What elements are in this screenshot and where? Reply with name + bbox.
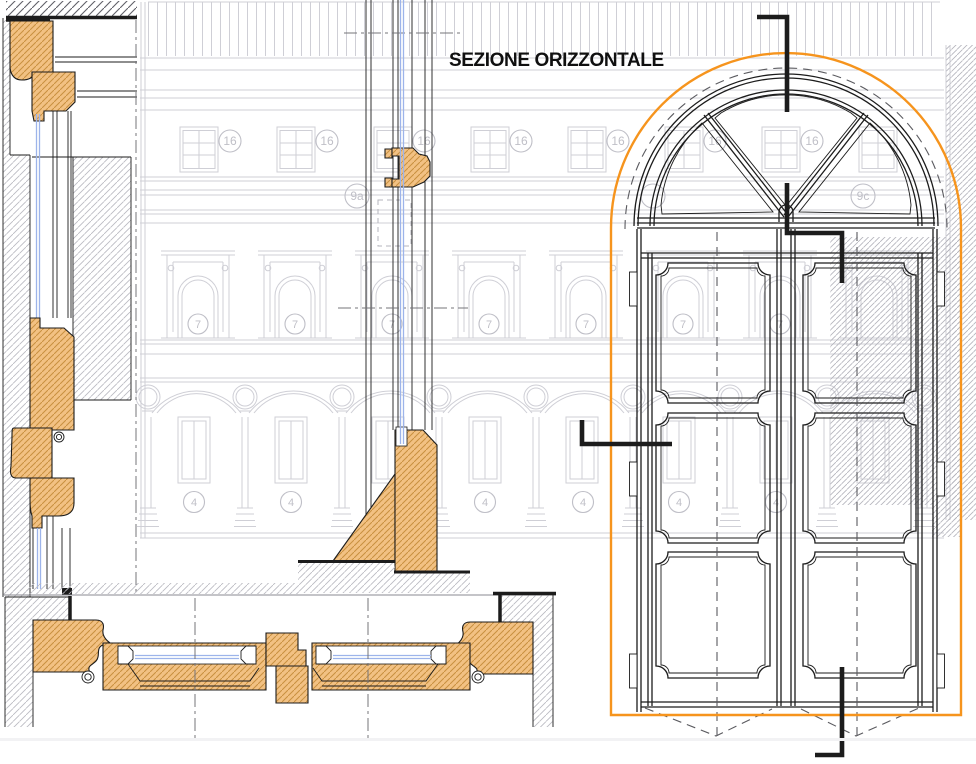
left-vertical-section-detail <box>3 1 137 597</box>
facade-label: 7 <box>486 319 492 331</box>
masonry-reveal-hatch <box>73 157 131 400</box>
door-panel <box>803 552 916 678</box>
facade-arcade-row-4 <box>136 385 936 527</box>
door-swing-dashes <box>645 708 919 736</box>
spandrel-medallion-inner <box>527 388 545 406</box>
spandrel-medallion-inner <box>236 388 254 406</box>
hinge-pin-left <box>82 671 94 683</box>
drawing-title: SEZIONE ORIZZONTALE <box>449 50 664 71</box>
wood-jamb-plan-left <box>33 620 110 672</box>
small-window-mullions <box>280 131 312 169</box>
spandrel-medallion-inner <box>139 388 157 406</box>
facade-windows-row-16 <box>180 127 897 172</box>
door-panel <box>656 552 770 678</box>
small-window-mullions <box>474 131 506 169</box>
door-elevation <box>611 53 961 737</box>
facade-label: 7 <box>195 319 201 331</box>
small-window-mullions <box>571 131 603 169</box>
wood-sill-wedge <box>333 474 395 561</box>
facade-label: 16 <box>417 134 431 148</box>
slab-edge-hatch <box>5 583 298 594</box>
glass-pane-lower <box>38 528 41 589</box>
hinge-tab <box>937 462 945 496</box>
wood-head-profile <box>10 21 53 80</box>
sash-frame-lines-upper <box>53 111 71 318</box>
spandrel-medallion <box>524 385 548 409</box>
meeting-stile-block-a <box>266 633 306 666</box>
hinge-pin-right <box>472 671 484 683</box>
facade-label: 9c <box>857 189 870 203</box>
door-panel-inner <box>808 557 911 673</box>
arcade-columns <box>137 411 935 527</box>
spandrel-medallion <box>718 385 742 409</box>
spandrel-medallion-inner <box>430 388 448 406</box>
facade-label: 7 <box>583 319 589 331</box>
meeting-stile-block-b <box>276 666 308 703</box>
facade-label: 4 <box>676 497 682 509</box>
facade-label: 4 <box>482 497 488 509</box>
section-cut-marker-bottom <box>815 667 842 755</box>
facade-label: 4 <box>773 497 779 509</box>
scan-edge-artifact <box>0 738 976 741</box>
drawing-canvas: 16161616161616777777744444449a9c <box>0 0 976 764</box>
facade-label: 4 <box>191 497 197 509</box>
facade-label: 9a <box>350 189 364 203</box>
horizontal-section-plan <box>3 583 556 740</box>
wood-mid-rail-profile <box>30 318 74 430</box>
small-window-mullions <box>765 131 797 169</box>
pivot-ring-inner <box>56 434 61 439</box>
facade-label: 4 <box>288 497 294 509</box>
hinge-tab <box>630 654 638 688</box>
glazing-slot <box>396 427 407 446</box>
section-cut-marker-left <box>582 420 672 444</box>
wood-sill-block <box>395 430 437 572</box>
facade-label: 7 <box>680 319 686 331</box>
wood-transom-profile <box>32 72 75 121</box>
ceiling-slab-hatch <box>6 1 137 16</box>
facade-label: 4 <box>580 497 586 509</box>
spandrel-medallion <box>427 385 451 409</box>
arcade-arches <box>152 391 920 413</box>
door-panel-inner <box>661 557 765 673</box>
facade-niche-row-7 <box>161 251 914 338</box>
facade-label: 7 <box>389 319 395 331</box>
facade-label: 7 <box>777 319 783 331</box>
central-vertical-section <box>298 0 470 593</box>
spandrel-medallion-inner <box>333 388 351 406</box>
frieze-hatch-band <box>148 2 940 56</box>
masonry-jamb-hatch <box>3 20 30 597</box>
spandrel-medallion <box>136 385 160 409</box>
small-window-mullions <box>862 131 894 169</box>
facade-label: 16 <box>514 134 528 148</box>
pivot-ring-outer <box>54 432 64 442</box>
spandrel-medallion <box>330 385 354 409</box>
small-window-mullions <box>183 131 215 169</box>
spandrel-medallion <box>233 385 257 409</box>
glass-pane-center <box>401 0 404 444</box>
facade-label: 16 <box>223 134 237 148</box>
hinge-tab <box>630 272 638 306</box>
glass-pane-upper <box>37 114 40 322</box>
door-panel-inner <box>661 418 765 538</box>
hinge-tab <box>937 654 945 688</box>
facade-label: 7 <box>292 319 298 331</box>
hinge-tab <box>630 462 638 496</box>
hinge-tab <box>937 272 945 306</box>
spandrel-medallion-inner <box>624 388 642 406</box>
wood-sill-profile <box>11 428 52 478</box>
facade-label: 16 <box>611 134 625 148</box>
facade-label: 16 <box>805 134 819 148</box>
floor-slab-hatch <box>298 562 470 593</box>
door-panel <box>656 413 770 543</box>
wood-lower-rail-profile <box>30 478 74 528</box>
facade-label: 16 <box>320 134 334 148</box>
architectural-drawing-sheet: 16161616161616777777744444449a9c <box>0 0 976 764</box>
